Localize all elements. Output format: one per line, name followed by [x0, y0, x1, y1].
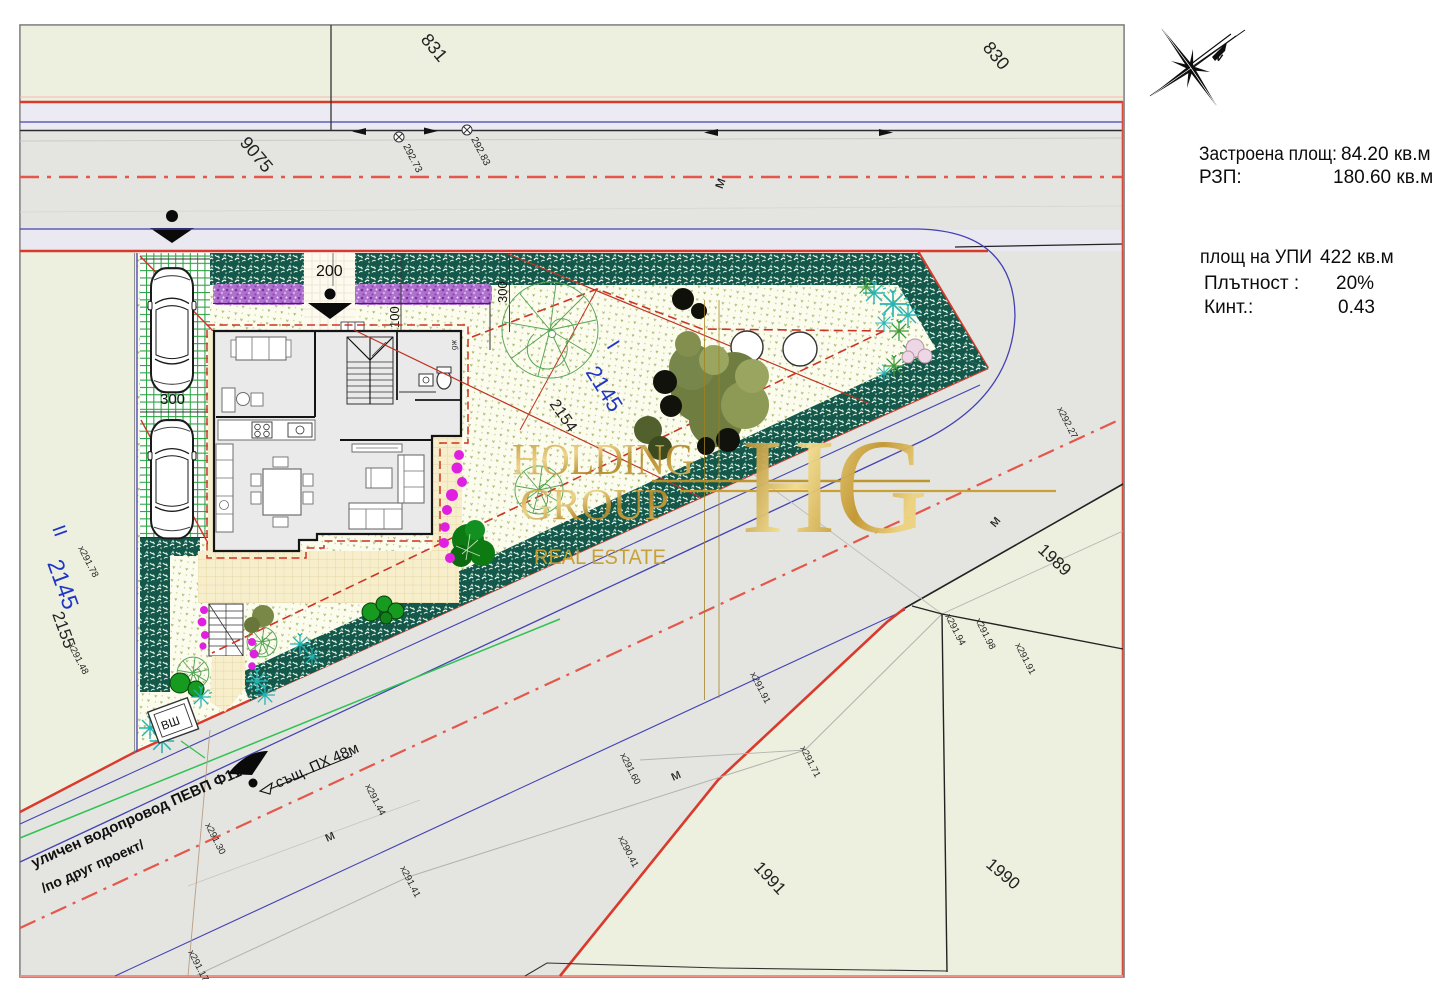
svg-text:Застроена площ:: Застроена площ:	[1199, 144, 1337, 165]
svg-text:HG: HG	[742, 412, 928, 562]
svg-text:84.20 кв.м: 84.20 кв.м	[1341, 144, 1431, 165]
svg-text:180.60 кв.м: 180.60 кв.м	[1333, 167, 1433, 188]
svg-text:площ на УПИ: площ на УПИ	[1200, 247, 1312, 268]
svg-text:GROUP: GROUP	[520, 480, 669, 529]
svg-text:200: 200	[316, 263, 343, 280]
svg-text:300: 300	[495, 281, 510, 303]
svg-text:20%: 20%	[1336, 273, 1374, 294]
svg-text:HOLDING: HOLDING	[512, 435, 694, 484]
svg-text:422 кв.м: 422 кв.м	[1320, 247, 1394, 268]
svg-text:Кинт.:: Кинт.:	[1204, 297, 1253, 318]
svg-text:Плътност :: Плътност :	[1204, 273, 1299, 294]
svg-text:РЗП:: РЗП:	[1199, 167, 1242, 188]
svg-text:REAL ESTATE: REAL ESTATE	[534, 546, 666, 569]
svg-text:300: 300	[160, 391, 185, 408]
svg-text:0.43: 0.43	[1338, 297, 1375, 318]
svg-text:жб: жб	[450, 340, 459, 350]
